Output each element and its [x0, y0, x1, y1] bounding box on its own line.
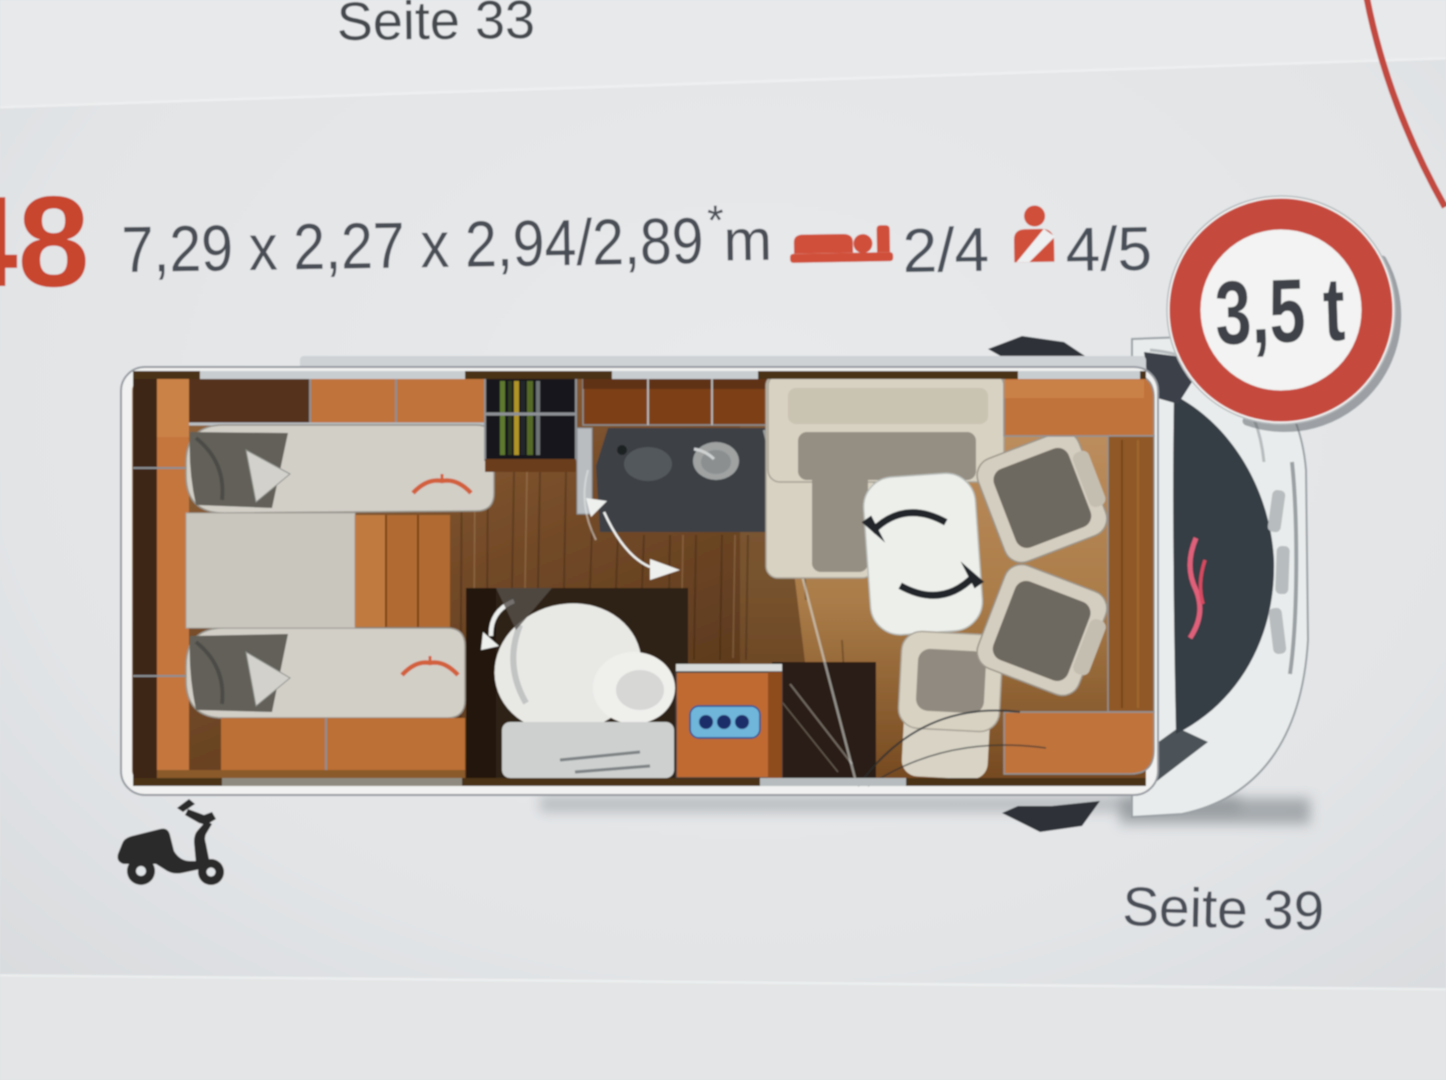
svg-text:Seite 33: Seite 33 — [336, 0, 535, 52]
svg-text:3,5 t: 3,5 t — [1213, 258, 1346, 363]
svg-text:Seite 39: Seite 39 — [1122, 875, 1325, 942]
svg-text:4/5: 4/5 — [1065, 215, 1152, 285]
svg-text:48: 48 — [0, 170, 90, 314]
svg-text:m: m — [723, 208, 772, 274]
svg-text:7,29 x 2,27 x 2,94/2,89: 7,29 x 2,27 x 2,94/2,89 — [121, 204, 704, 285]
svg-text:2/4: 2/4 — [902, 216, 989, 286]
svg-text:*: * — [707, 197, 724, 244]
